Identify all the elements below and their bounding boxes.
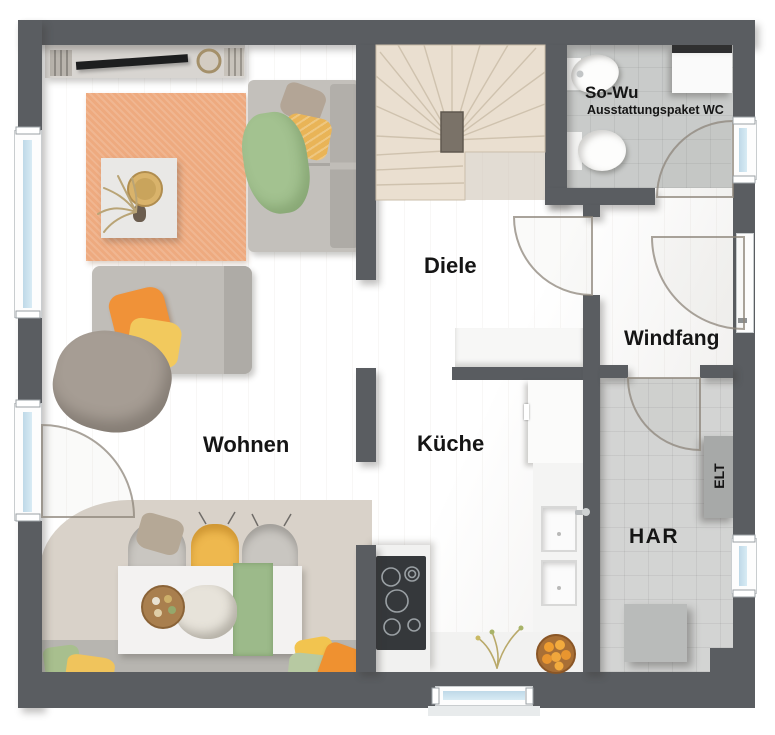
- wall-wc-left: [545, 45, 567, 205]
- kitchen-sink-basin-2: [541, 560, 577, 606]
- room-label-elt: ELT: [711, 462, 727, 490]
- wall-wc-bottom: [545, 188, 655, 205]
- window-har-glass: [739, 546, 747, 586]
- sideboard-books-left: [50, 50, 72, 76]
- window-kitchen-glass: [443, 691, 525, 700]
- wall-top: [18, 20, 755, 45]
- kitchen-tall-unit: [528, 380, 583, 463]
- wall-har-notch: [710, 648, 733, 672]
- wall-windfang-south-east: [700, 365, 733, 378]
- wall-divider-living-bottom: [356, 545, 376, 672]
- kitchen-sink-basin-1: [541, 506, 577, 552]
- sofa-back-cushions: [330, 84, 358, 248]
- wall-divider-living-mid: [356, 368, 376, 462]
- coffee-table-vase: [133, 205, 146, 222]
- wall-windfang-south-west: [600, 365, 628, 378]
- armchair-back: [224, 266, 252, 374]
- room-label-wohnen: Wohnen: [203, 432, 289, 458]
- floor-plan: Wohnen Diele Küche Windfang HAR So-Wu Au…: [0, 0, 775, 735]
- kitchen-counter-head: [455, 328, 583, 367]
- wall-windfang-stub: [583, 205, 600, 217]
- terrace-door-glass: [23, 412, 32, 512]
- window-living-upper-glass: [23, 140, 32, 308]
- coffee-table: [101, 158, 177, 238]
- front-door-handle: [738, 318, 747, 323]
- wall-bottom: [18, 672, 755, 708]
- room-label-so-wu-sub: Ausstattungspaket WC: [587, 103, 724, 117]
- kitchen-counter-south: [427, 632, 587, 672]
- room-label-har: HAR: [629, 525, 679, 549]
- wall-left: [18, 20, 42, 708]
- kitchen-counter-head-plinth: [452, 367, 583, 380]
- room-label-diele: Diele: [424, 253, 477, 279]
- sideboard-books-right: [224, 48, 244, 76]
- cooktop: [376, 556, 426, 650]
- room-label-kueche: Küche: [417, 431, 484, 457]
- wc-toilet-bowl: [578, 130, 626, 171]
- window-kitchen-sill: [428, 706, 540, 716]
- room-label-so-wu: So-Wu: [585, 83, 639, 103]
- room-label-windfang: Windfang: [624, 327, 719, 351]
- washing-machine-lid: [672, 45, 732, 53]
- wall-windfang-west: [583, 295, 600, 672]
- kitchen-tall-unit-handle: [524, 404, 529, 420]
- dining-flowers: [175, 585, 237, 639]
- dining-table-runner: [233, 563, 273, 656]
- window-wc-glass: [739, 128, 747, 172]
- wall-divider-living-top: [356, 45, 376, 280]
- har-appliance-box: [624, 604, 687, 662]
